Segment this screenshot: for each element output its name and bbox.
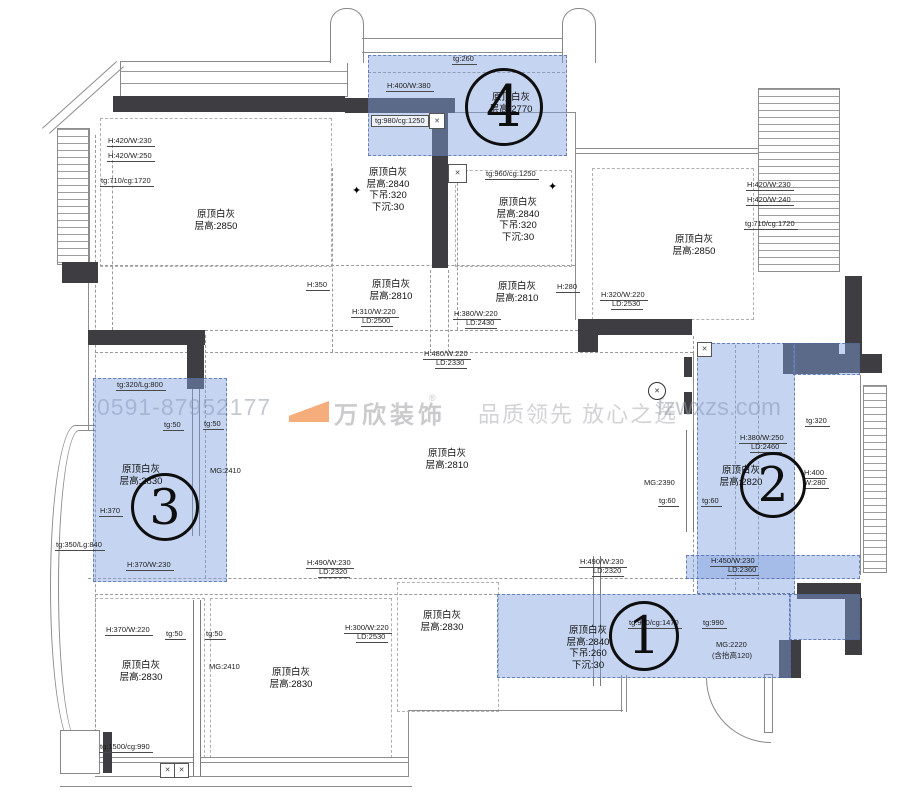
light-fixture-icon: ✕ [448,164,467,183]
wall-outline [88,345,89,430]
dimension-label: W:280 [803,479,829,489]
wall-outline [88,283,89,330]
doorbell-icon: ✕ [648,382,666,400]
wall-segment [578,335,598,352]
dimension-label: tg:60 [701,497,722,507]
region-circle-1: 1 [609,601,679,671]
dimension-label: LD:2320 [318,568,350,578]
dimension-label: H:420/W:230 [107,137,155,147]
light-fixture-icon: ✕ [429,113,445,129]
light-fixture-icon: ✕ [174,763,189,778]
dimension-label: LD:2360 [727,566,759,576]
dimension-label: H:370/W:220 [105,626,153,636]
watermark-slogan: 品质领先 放心之选 [478,397,678,429]
region-circle-3: 3 [131,473,199,541]
room-label: 原顶白灰 层高:2850 [673,234,716,257]
registered-mark: ® [429,393,436,403]
partition-door [193,600,201,776]
curved-balcony [58,430,96,744]
dimension-label: tg:320/Lg:800 [116,381,166,391]
dimension-label: H:370/W:230 [126,561,174,571]
dimension-label: LD:2500 [361,317,393,327]
wall-outline [575,153,759,154]
dimension-label: H:420/W:250 [107,152,155,162]
wall-outline [575,148,759,149]
dimension-label: H:400/W:380 [386,82,434,92]
column-pillar [330,8,364,63]
room-label: 原顶白灰 层高:2810 [496,281,539,304]
wall-segment [684,357,692,377]
dimension-label: LD:2530 [611,300,643,310]
ceiling-plan-canvas: 0591-87952177 万欣装饰 ® 品质领先 放心之选 fzwxzs.co… [0,0,900,807]
dimension-label: (含抬高120) [712,652,752,660]
ceiling-star-icon: ✦ [352,186,361,197]
highlight-region [789,594,860,640]
room-label: 原顶白灰 层高:2830 [120,660,163,683]
room-label: 原顶白灰 层高:2840 下吊:320 下沉:30 [367,167,410,213]
dimension-label: tg:350/Lg:840 [55,541,105,551]
wall-segment [62,262,98,283]
ceiling-dashed-line [448,270,449,352]
wall-outline [362,52,562,53]
ceiling-dashed-line [112,140,113,330]
dimension-label: H:350 [306,281,330,291]
bay-window [57,128,90,265]
dimension-label: tg:260 [452,55,477,65]
dimension-label: H:370 [99,507,123,517]
light-fixture-icon: ✕ [160,763,175,778]
room-label: 原顶白灰 层高:2840 下吊:260 下沉:30 [567,625,610,671]
wall-outline [60,786,412,787]
region-circle-2: 2 [740,452,806,518]
dimension-label: H:280 [556,283,580,293]
dimension-label: tg:320 [805,417,830,427]
dimension-label: tg:990 [702,619,727,629]
wall-outline [95,776,408,777]
dimension-label: LD:2430 [465,319,497,329]
dimension-label: MG:2220 [716,641,747,649]
wall-outline [621,675,622,712]
wall-outline [408,712,409,777]
ceiling-dashed-line [457,168,458,330]
wall-segment [578,319,692,335]
dimension-label: tg:60 [658,497,679,507]
room-label: 原顶白灰 层高:2810 [370,279,413,302]
room-label: 原顶白灰 层高:2830 [421,610,464,633]
dimension-label: MG:2410 [210,467,241,475]
room-label: 原顶白灰 层高:2810 [426,448,469,471]
wall-outline [408,710,623,711]
wall-outline [88,762,408,763]
ceiling-dashed-line [95,594,497,595]
dimension-label: tg:710/cg:1720 [100,177,154,187]
dimension-label: tg:710/cg:1720 [744,220,798,230]
dimension-label: tg:980/cg:1250 [371,115,429,127]
light-fixture-icon: ✕ [697,342,712,357]
room-label: 原顶白灰 层高:2830 [270,667,313,690]
dimension-label: LD:2320 [592,567,624,577]
room-label: 原顶白灰 层高:2840 下吊:320 下沉:30 [497,197,540,243]
ceiling-dashed-line [205,330,578,331]
window-band [120,61,348,97]
wall-outline [362,38,562,39]
ceiling-star-icon: ✦ [548,182,557,193]
wall-outline [626,675,627,712]
dimension-label: LD:2330 [435,359,467,369]
brand-logo-icon [289,401,329,422]
dimension-label: H:420/W:240 [746,196,794,206]
dimension-label: tg:50 [165,630,186,640]
column-pillar [562,8,596,63]
dimension-label: MG:2390 [644,479,675,487]
wall-outline [88,128,89,263]
ceiling-dashed-rect [397,582,499,712]
wall-segment [113,96,345,112]
dimension-label: tg:50 [205,630,226,640]
wall-segment [88,330,205,345]
door-swing-arc [706,678,771,743]
bay-window [863,385,887,573]
dimension-label: tg:960/cg:1250 [485,170,539,180]
dimension-label: LD:2530 [356,633,388,643]
ceiling-dashed-line [430,270,431,352]
counter-box [60,730,100,774]
region-circle-4: 4 [465,68,543,146]
dimension-label: tg:50 [203,420,224,430]
dimension-label: tg:50 [163,421,184,431]
wall-outline [860,375,861,575]
highlight-region [793,343,860,375]
dimension-label: tg:1500/cg:990 [99,743,153,753]
ceiling-dashed-line [95,352,693,353]
partition-door [686,430,694,532]
dimension-label: H:420/W:230 [746,181,794,191]
room-label: 原顶白灰 层高:2850 [195,209,238,232]
wall-outline [88,757,408,758]
dimension-label: MG:2410 [209,663,240,671]
ceiling-dashed-line [332,168,333,352]
ceiling-dashed-line [95,265,575,266]
